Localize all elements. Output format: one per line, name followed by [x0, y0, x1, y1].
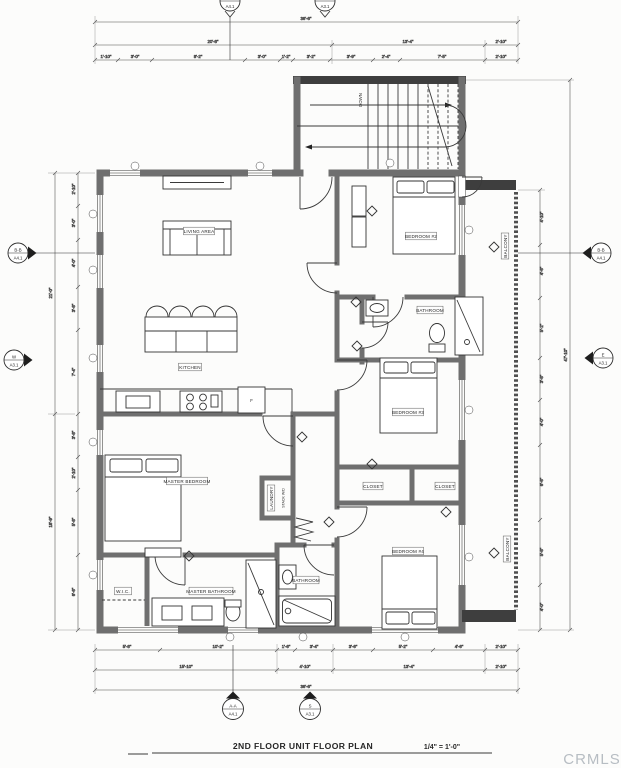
section-marker-top-left: A4.1: [220, 0, 240, 60]
svg-text:BEDROOM #4: BEDROOM #4: [392, 549, 424, 554]
label-balcony-upper: BALCONY: [501, 233, 509, 259]
svg-text:S: S: [309, 704, 312, 709]
svg-text:4'-6": 4'-6": [455, 644, 464, 649]
bedroom4-furniture: [382, 556, 437, 629]
window: [118, 626, 178, 634]
bathroom-lower-door: [304, 545, 334, 575]
svg-text:MASTER BATHROOM: MASTER BATHROOM: [186, 589, 236, 594]
window: [458, 525, 466, 585]
svg-text:15'-10": 15'-10": [179, 664, 193, 669]
kitchen-fixtures: F: [100, 306, 292, 413]
dimensions-left: 2'-10" 3'-0" 4'-0" 3'-8" 7'-4" 3'-8" 2'-…: [48, 171, 95, 632]
svg-text:5'-2": 5'-2": [539, 323, 544, 332]
dresser: [145, 548, 181, 557]
bedroom4-door: [337, 507, 367, 537]
svg-text:4'-10": 4'-10": [539, 211, 544, 222]
svg-text:6'-6": 6'-6": [539, 477, 544, 486]
section-marker-left: B-B A4.1: [8, 243, 95, 263]
svg-text:A4.1: A4.1: [597, 256, 606, 261]
staircase: DOWN: [297, 84, 466, 169]
stair-head-wall: [293, 76, 466, 84]
svg-text:3'-2": 3'-2": [307, 54, 316, 59]
svg-text:A4.1: A4.1: [229, 712, 238, 717]
label-closet-b: CLOSET: [435, 482, 455, 490]
svg-text:BEDROOM #3: BEDROOM #3: [392, 410, 424, 415]
svg-text:2'-10": 2'-10": [496, 39, 507, 44]
svg-text:2'-10": 2'-10": [496, 664, 507, 669]
svg-text:A3.1: A3.1: [321, 4, 330, 9]
shower: [246, 560, 276, 628]
sheet-title: 2ND FLOOR UNIT FLOOR PLAN: [233, 741, 373, 751]
elevation-marker-east: E A3.1: [585, 348, 614, 368]
kitchen-island: [145, 317, 237, 352]
svg-text:4'-0": 4'-0": [539, 417, 544, 426]
svg-text:21'-0": 21'-0": [48, 287, 53, 298]
svg-text:2'-10": 2'-10": [496, 644, 507, 649]
label-bedroom-2: BEDROOM #2: [405, 232, 437, 240]
living-room-furniture: [163, 176, 231, 255]
svg-text:3'-8": 3'-8": [71, 303, 76, 312]
label-stack-wd: STACK W/D: [282, 488, 286, 508]
section-marker-right: B-B A4.1: [518, 243, 611, 263]
dim-bottom-overall: 36'-6": [301, 684, 312, 689]
toilet: [225, 600, 241, 621]
svg-text:1'-6": 1'-6": [282, 644, 291, 649]
toilet: [429, 324, 445, 353]
svg-text:3'-8": 3'-8": [71, 430, 76, 439]
bedroom3-furniture: [380, 358, 437, 433]
base-cabinet: [116, 391, 160, 412]
dim-top-overall: 36'-6": [301, 16, 312, 21]
master-bedroom-door: [263, 416, 293, 446]
vanity-sink: [366, 300, 388, 316]
svg-text:2'-10": 2'-10": [496, 54, 507, 59]
label-bathroom-upper: BATHROOM: [416, 306, 444, 314]
svg-text:E: E: [602, 353, 605, 358]
svg-text:BATHROOM: BATHROOM: [292, 578, 320, 583]
svg-text:20'-8": 20'-8": [208, 39, 219, 44]
master-bathroom-door: [155, 555, 185, 585]
svg-text:LIVING AREA: LIVING AREA: [184, 229, 216, 234]
title-block: 2ND FLOOR UNIT FLOOR PLAN 1/4" = 1'-0": [128, 741, 492, 754]
svg-text:A3.1: A3.1: [10, 363, 19, 368]
svg-text:A4.1: A4.1: [226, 4, 235, 9]
svg-text:A4.1: A4.1: [14, 256, 23, 261]
svg-text:F: F: [250, 398, 253, 403]
bed-3: [380, 358, 437, 433]
label-closet-a: CLOSET: [363, 482, 383, 490]
label-kitchen: KITCHEN: [179, 363, 202, 371]
entry-door: [300, 177, 332, 209]
svg-text:1'-2": 1'-2": [282, 54, 291, 59]
window: [96, 255, 104, 288]
label-master-bedroom: MASTER BEDROOM: [164, 477, 211, 485]
svg-text:B-B: B-B: [14, 248, 21, 253]
svg-text:3'-0": 3'-0": [71, 218, 76, 227]
svg-text:CLOSET: CLOSET: [363, 484, 383, 489]
bed-2: [393, 177, 455, 254]
bedroom2-furniture: [352, 177, 455, 254]
svg-text:18'-9": 18'-9": [48, 516, 53, 527]
label-bedroom-3: BEDROOM #3: [392, 408, 424, 416]
svg-text:A3.1: A3.1: [306, 712, 315, 717]
svg-text:5'-8": 5'-8": [71, 517, 76, 526]
svg-text:5'-8": 5'-8": [539, 547, 544, 556]
svg-text:4'-0": 4'-0": [539, 602, 544, 611]
svg-text:W.I.C.: W.I.C.: [116, 589, 130, 594]
elevation-marker-south: S A3.1: [300, 692, 321, 720]
bathroom-upper-door: [362, 322, 388, 348]
bathtub: [279, 596, 335, 626]
refrigerator: F: [238, 387, 265, 413]
crmls-watermark: CRMLS: [563, 751, 621, 768]
svg-text:13'-4": 13'-4": [403, 39, 414, 44]
svg-text:4'-6": 4'-6": [539, 266, 544, 275]
sheet-scale: 1/4" = 1'-0": [424, 744, 460, 751]
svg-text:7'-4": 7'-4": [71, 367, 76, 376]
dimensions-bottom: 5'-8" 10'-2" 1'-6" 3'-4" 3'-6" 5'-2" 4'-…: [93, 644, 520, 694]
label-bedroom-4: BEDROOM #4: [392, 547, 424, 555]
svg-text:1'-10": 1'-10": [101, 54, 112, 59]
svg-text:LAUNDRY: LAUNDRY: [269, 486, 274, 509]
svg-text:A-A: A-A: [229, 704, 236, 709]
wardrobe: [352, 217, 366, 247]
label-wic: W.I.C.: [115, 587, 132, 595]
label-bathroom-lower: BATHROOM: [292, 576, 320, 584]
svg-text:4'-10": 4'-10": [300, 664, 311, 669]
svg-text:A3.1: A3.1: [599, 361, 608, 366]
svg-text:BALCONY: BALCONY: [503, 234, 508, 257]
svg-text:3'-0": 3'-0": [131, 54, 140, 59]
dim-right-overall: 47'-10": [563, 348, 568, 362]
elevation-marker-top-right: A3.1: [315, 0, 335, 17]
master-bedroom-furniture: [105, 455, 181, 557]
svg-text:BEDROOM #2: BEDROOM #2: [405, 234, 437, 239]
hall-door: [307, 263, 337, 293]
elevation-marker-west: W A3.1: [4, 350, 33, 370]
svg-text:13'-4": 13'-4": [404, 664, 415, 669]
wardrobe: [352, 186, 366, 216]
svg-text:3'-9": 3'-9": [347, 54, 356, 59]
range-stove: [180, 391, 222, 412]
shower: [455, 297, 483, 355]
svg-text:8'-2": 8'-2": [194, 54, 203, 59]
svg-text:2'-10": 2'-10": [71, 467, 76, 478]
svg-text:5'-2": 5'-2": [399, 644, 408, 649]
label-laundry: LAUNDRY: [267, 485, 275, 511]
double-vanity: [152, 598, 224, 626]
svg-text:BATHROOM: BATHROOM: [416, 308, 444, 313]
svg-text:6'-6": 6'-6": [71, 587, 76, 596]
svg-text:3'-8": 3'-8": [539, 374, 544, 383]
svg-text:MASTER BEDROOM: MASTER BEDROOM: [164, 479, 211, 484]
label-master-bathroom: MASTER BATHROOM: [186, 587, 236, 595]
sofa: [163, 221, 231, 255]
svg-text:5'-8": 5'-8": [123, 644, 132, 649]
svg-text:B-B: B-B: [597, 248, 604, 253]
label-balcony-lower: BALCONY: [503, 536, 511, 562]
floor-plan-drawing: 36'-6" 20'-8" 13'-4" 2'-10" 1'-10" 3'-0"…: [0, 0, 621, 768]
svg-text:2'-10": 2'-10": [71, 183, 76, 194]
svg-text:10'-2": 10'-2": [213, 644, 224, 649]
bar-stools: [146, 306, 237, 317]
svg-text:BALCONY: BALCONY: [505, 537, 510, 560]
floor-plan-sheet: 36'-6" 20'-8" 13'-4" 2'-10" 1'-10" 3'-0"…: [0, 0, 621, 768]
svg-text:4'-0": 4'-0": [71, 258, 76, 267]
svg-text:7'-5": 7'-5": [438, 54, 447, 59]
keynote-symbols: [184, 206, 499, 561]
svg-text:KITCHEN: KITCHEN: [179, 365, 201, 370]
stair-down-label: DOWN: [358, 93, 363, 107]
attic-access-symbol: [295, 518, 313, 541]
svg-text:CLOSET: CLOSET: [435, 484, 455, 489]
svg-text:3'-0": 3'-0": [258, 54, 267, 59]
bed-master: [105, 455, 181, 541]
svg-text:3'-6": 3'-6": [349, 644, 358, 649]
dimensions-top: 36'-6" 20'-8" 13'-4" 2'-10" 1'-10" 3'-0"…: [93, 16, 520, 64]
section-marker-bottom: A-A A4.1: [223, 645, 244, 720]
svg-text:2'-4": 2'-4": [382, 54, 391, 59]
bathroom-upper-fixtures: [366, 297, 483, 355]
label-living-area: LIVING AREA: [184, 227, 216, 235]
svg-text:3'-4": 3'-4": [310, 644, 319, 649]
bed-4: [382, 556, 437, 629]
